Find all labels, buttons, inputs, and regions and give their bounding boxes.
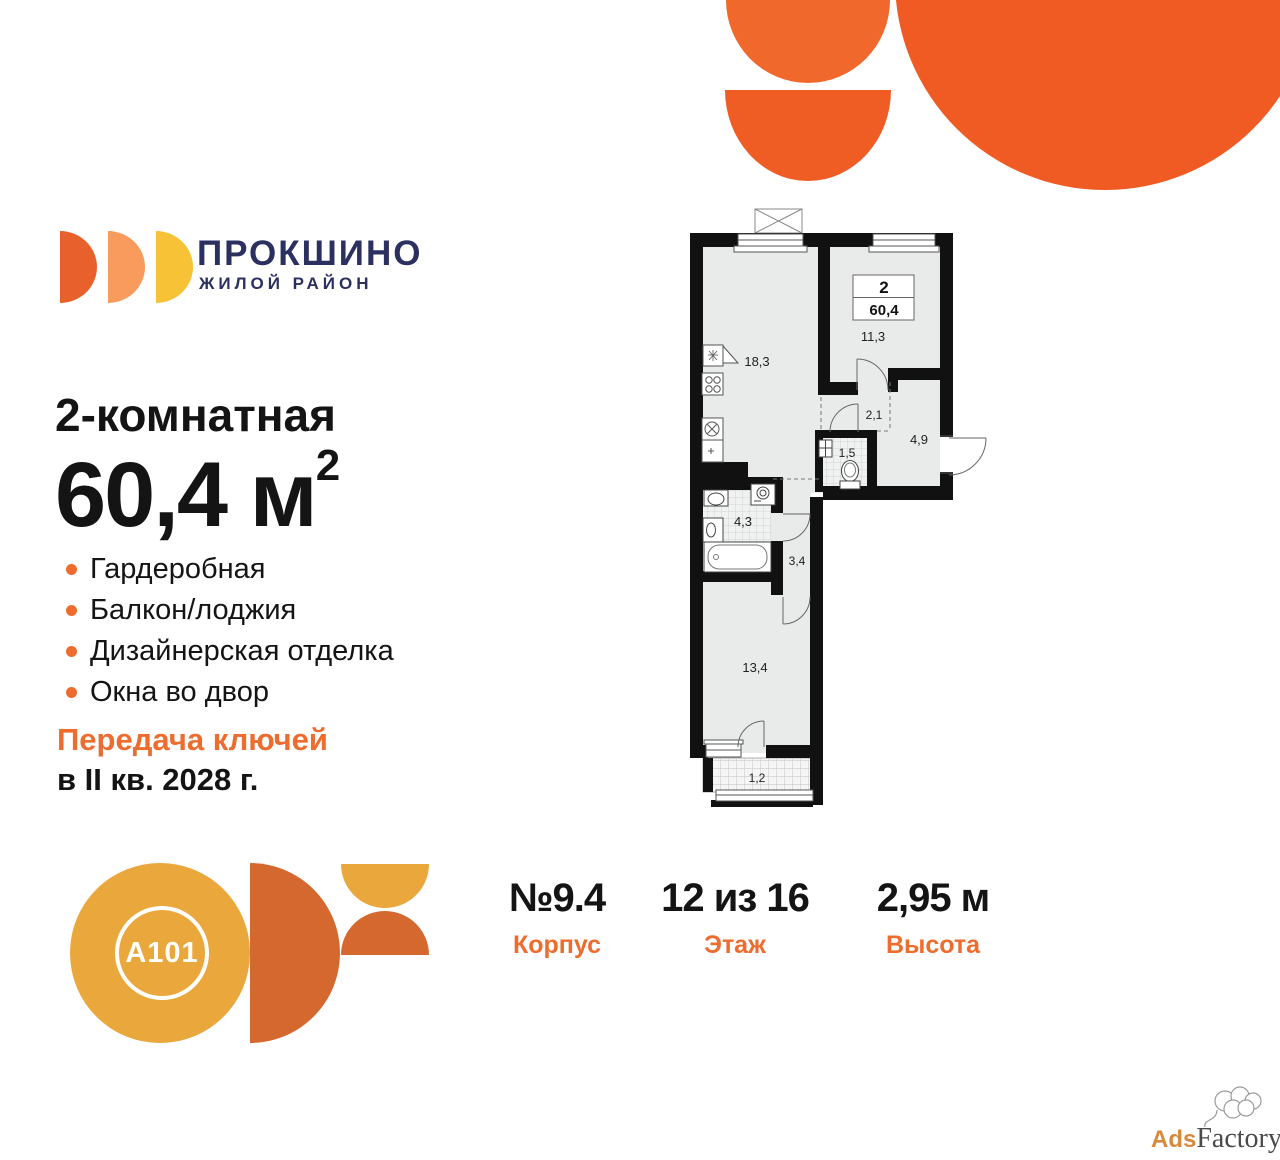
feature-item: Окна во двор [58,672,394,713]
deco-semicircle-small-top [726,0,890,83]
feature-label: Балкон/лоджия [90,594,296,626]
watermark: AdsFactory [1145,1083,1280,1158]
feature-item: Балкон/лоджия [58,590,394,631]
area-unit: м [226,444,316,546]
info-rooms-count: 2 [879,278,888,297]
deco-semicircle-small-bottom [725,90,891,181]
area-balcony: 1,2 [749,771,766,785]
deco-circle-large [895,0,1280,190]
ac-box [755,209,802,233]
brand-name: ПРОКШИНО [197,234,422,274]
offer-area: 60,4 м2 [55,441,340,548]
brand-logo-half-disc-3 [156,231,193,303]
a101-logo-ring: A101 [115,906,209,1000]
stat-value: №9.4 [509,876,605,921]
stat-ceiling-height: 2,95 м Высота [877,876,990,960]
watermark-factory: Factory [1196,1123,1280,1154]
feature-label: Гардеробная [90,553,265,585]
keys-handover-line1: Передача ключей [57,722,328,758]
stat-floor: 12 из 16 Этаж [661,876,809,960]
area-bedroom2: 13,4 [742,660,767,675]
stat-value: 2,95 м [877,876,990,921]
brand-subtitle: ЖИЛОЙ РАЙОН [199,274,373,294]
bullet-icon [66,564,77,575]
entrance-door [940,436,986,475]
brand-logo-half-disc-2 [108,231,145,303]
stat-label: Корпус [509,931,605,960]
brand-logo-half-disc-1 [60,231,97,303]
plan-info-box: 2 60,4 [853,275,914,320]
a101-logo-hourglass-bottom [341,911,429,955]
a101-logo-hourglass-top [341,864,429,908]
offer-title: 2-комнатная [55,388,336,442]
ad-page: ПРОКШИНО ЖИЛОЙ РАЙОН 2-комнатная 60,4 м2… [0,0,1280,1160]
floorplan-svg: 2 60,4 18,3 11,3 2,1 4,9 1,5 4,3 3,4 13,… [688,205,1000,815]
feature-item: Гардеробная [58,549,394,590]
info-total-area: 60,4 [869,302,899,319]
area-wc: 1,5 [839,446,856,460]
feature-label: Дизайнерская отделка [90,635,394,667]
area-superscript: 2 [316,441,340,490]
features-list: Гардеробная Балкон/лоджия Дизайнерская о… [58,549,394,713]
watermark-ads: Ads [1151,1126,1196,1153]
area-kitchen-living: 18,3 [744,354,769,369]
a101-logo-half-disc [250,863,340,1043]
feature-label: Окна во двор [90,676,269,708]
stat-building: №9.4 Корпус [509,876,605,960]
area-bedroom: 11,3 [861,329,885,344]
stat-label: Высота [877,931,990,960]
area-hallway: 4,9 [910,432,928,447]
area-wardrobe: 2,1 [866,408,883,422]
smoke-cloud-icon [1145,1083,1280,1128]
a101-logo-text: A101 [125,937,198,970]
feature-item: Дизайнерская отделка [58,631,394,672]
bullet-icon [66,646,77,657]
keys-handover-line2: в II кв. 2028 г. [57,762,258,798]
area-bathroom: 4,3 [734,514,752,529]
area-corridor: 3,4 [789,554,806,568]
bullet-icon [66,605,77,616]
stat-label: Этаж [661,931,809,960]
watermark-text: AdsFactory [1151,1123,1280,1155]
area-value: 60,4 [55,444,226,546]
bullet-icon [66,687,77,698]
stat-value: 12 из 16 [661,876,809,921]
